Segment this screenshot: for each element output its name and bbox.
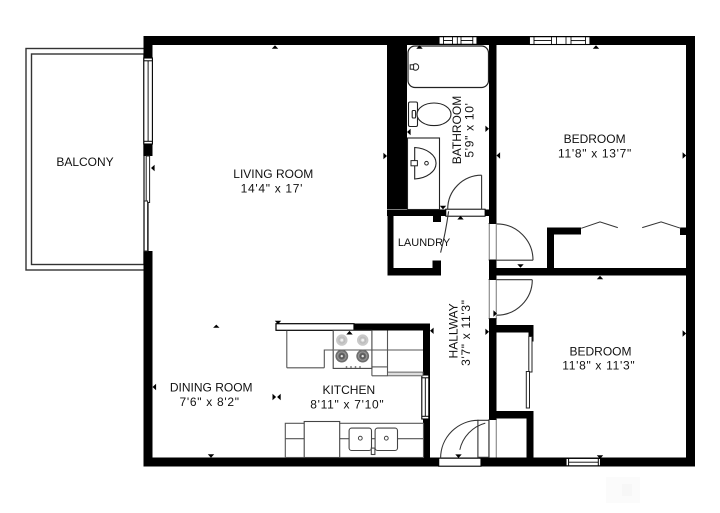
svg-text:11'8" x 11'3": 11'8" x 11'3" xyxy=(562,359,635,373)
svg-text:DINING ROOM: DINING ROOM xyxy=(170,380,253,394)
svg-text:BEDROOM: BEDROOM xyxy=(564,132,626,146)
svg-text:14'4" x 17': 14'4" x 17' xyxy=(241,182,304,196)
svg-text:LAUNDRY: LAUNDRY xyxy=(398,237,451,249)
svg-text:8'11" x 7'10": 8'11" x 7'10" xyxy=(310,398,384,412)
svg-text:BEDROOM: BEDROOM xyxy=(569,344,631,358)
svg-text:3'7" x 11'3": 3'7" x 11'3" xyxy=(459,299,473,366)
svg-text:11'8" x 13'7": 11'8" x 13'7" xyxy=(558,147,632,161)
svg-text:5'9" x 10': 5'9" x 10' xyxy=(462,102,476,157)
svg-text:LIVING ROOM: LIVING ROOM xyxy=(233,167,313,181)
svg-text:7'6" x 8'2": 7'6" x 8'2" xyxy=(180,395,240,409)
svg-text:KITCHEN: KITCHEN xyxy=(322,383,375,397)
svg-text:BALCONY: BALCONY xyxy=(56,155,113,169)
